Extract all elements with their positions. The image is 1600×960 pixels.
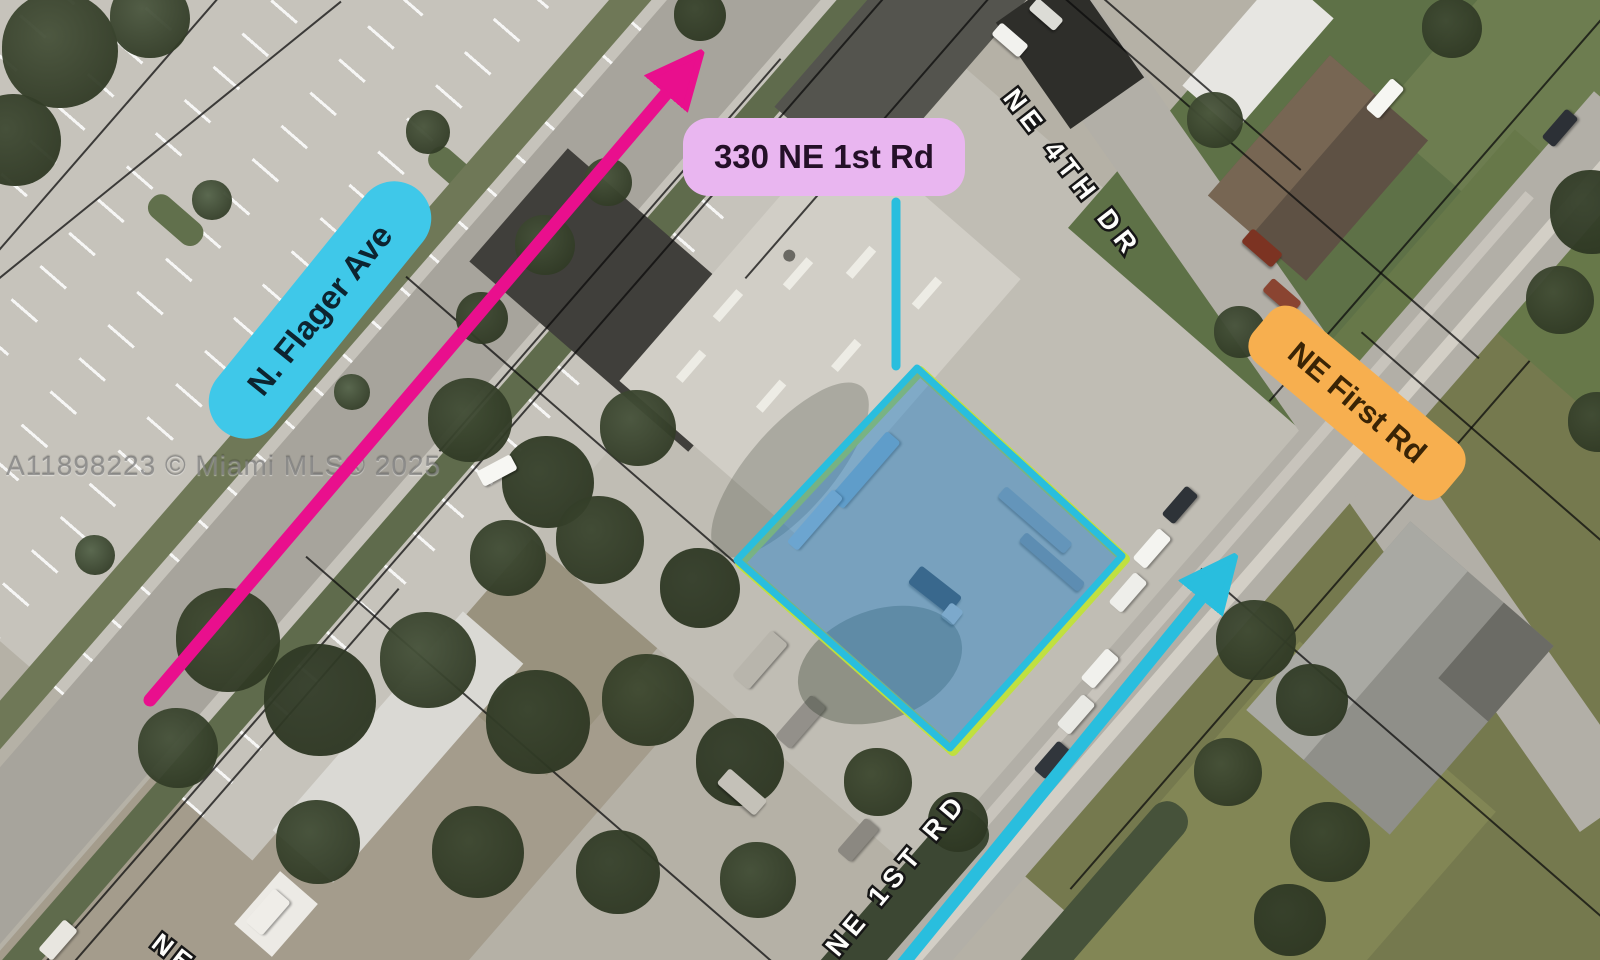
address-label: 330 NE 1st Rd [683, 118, 965, 196]
satellite-map: A11898223 © Miami MLS® 2025 NE 4TH DR NE… [0, 0, 1600, 960]
